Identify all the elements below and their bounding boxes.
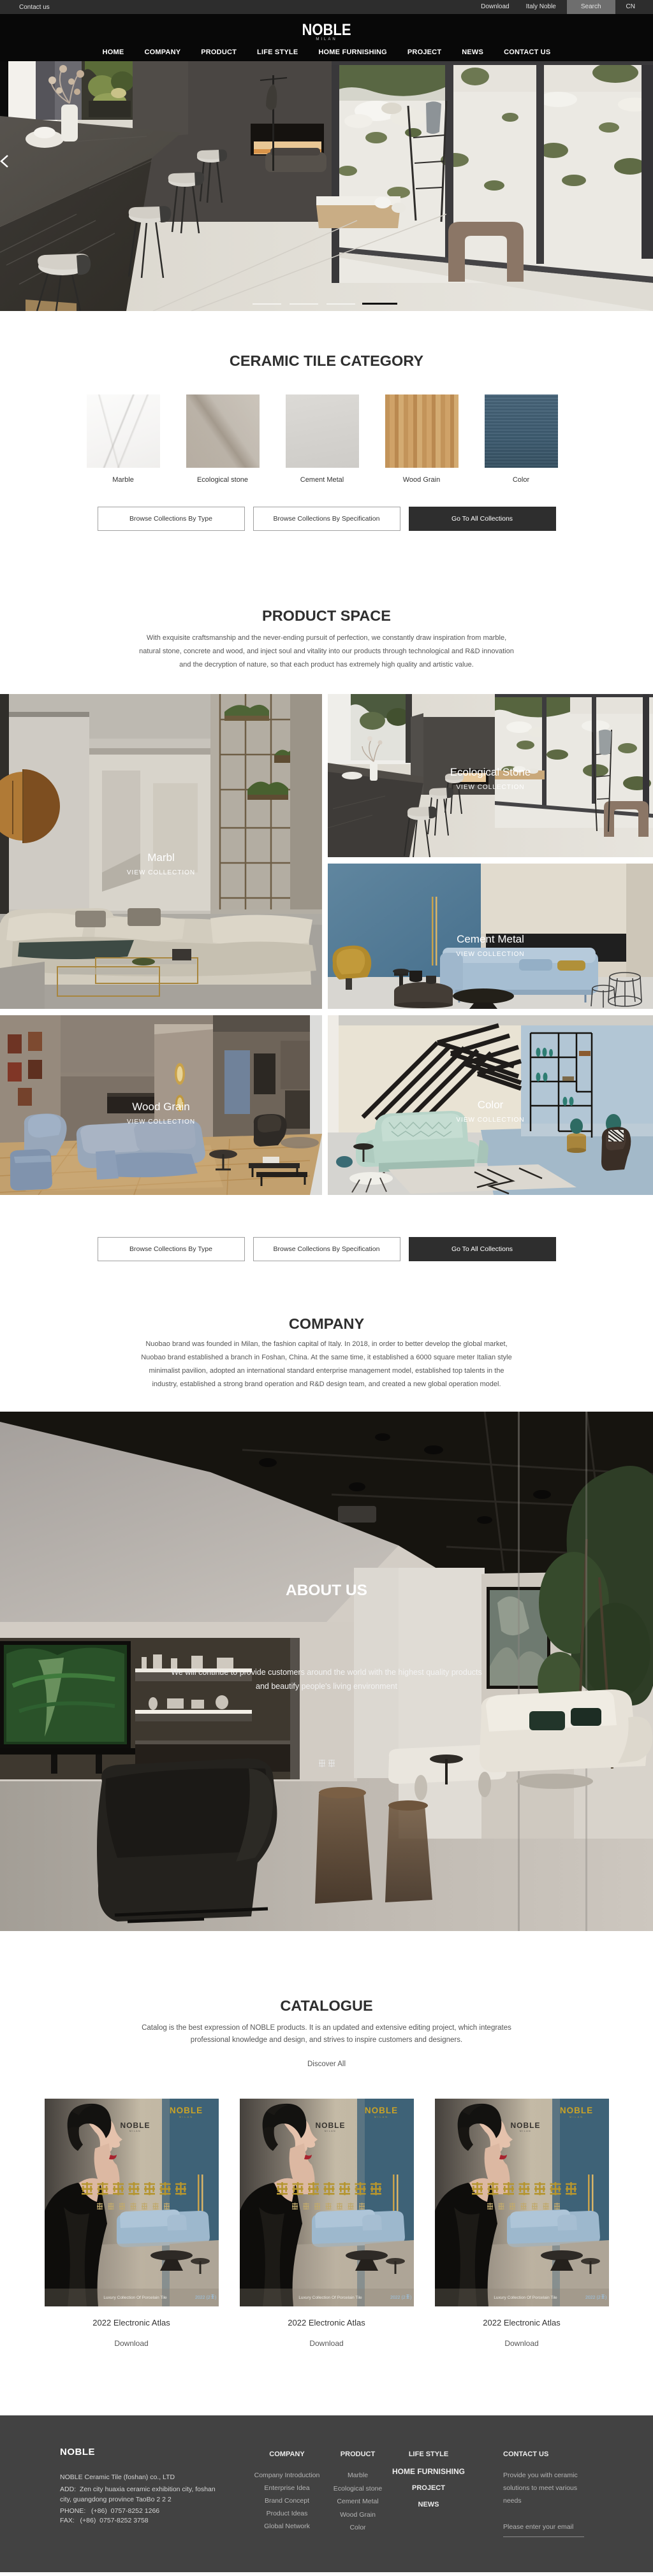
svg-text:MILAN: MILAN xyxy=(519,2130,531,2132)
svg-text:MILAN: MILAN xyxy=(129,2130,140,2132)
svg-text:Luxury Collection Of Porcelain: Luxury Collection Of Porcelain Tile xyxy=(103,2296,167,2300)
svg-text:NOBLE: NOBLE xyxy=(364,2106,397,2115)
svg-text:MILAN: MILAN xyxy=(374,2115,388,2118)
svg-text:NOBLE: NOBLE xyxy=(120,2121,150,2130)
svg-text:2022 (2: 2022 (2 xyxy=(195,2296,210,2300)
svg-text:): ) xyxy=(215,2296,216,2300)
svg-text:NOBLE: NOBLE xyxy=(510,2121,540,2130)
svg-text:MILAN: MILAN xyxy=(569,2115,583,2118)
svg-text:2022 (2: 2022 (2 xyxy=(390,2296,406,2300)
svg-text:2022 (2: 2022 (2 xyxy=(585,2296,601,2300)
svg-text:Luxury Collection Of Porcelain: Luxury Collection Of Porcelain Tile xyxy=(298,2296,362,2300)
svg-text:NOBLE: NOBLE xyxy=(315,2121,345,2130)
svg-text:Luxury Collection Of Porcelain: Luxury Collection Of Porcelain Tile xyxy=(494,2296,557,2300)
svg-text:): ) xyxy=(410,2296,411,2300)
svg-text:): ) xyxy=(605,2296,606,2300)
svg-text:NOBLE: NOBLE xyxy=(169,2106,202,2115)
svg-text:NOBLE: NOBLE xyxy=(559,2106,592,2115)
svg-text:MILAN: MILAN xyxy=(179,2115,193,2118)
svg-text:MILAN: MILAN xyxy=(324,2130,335,2132)
